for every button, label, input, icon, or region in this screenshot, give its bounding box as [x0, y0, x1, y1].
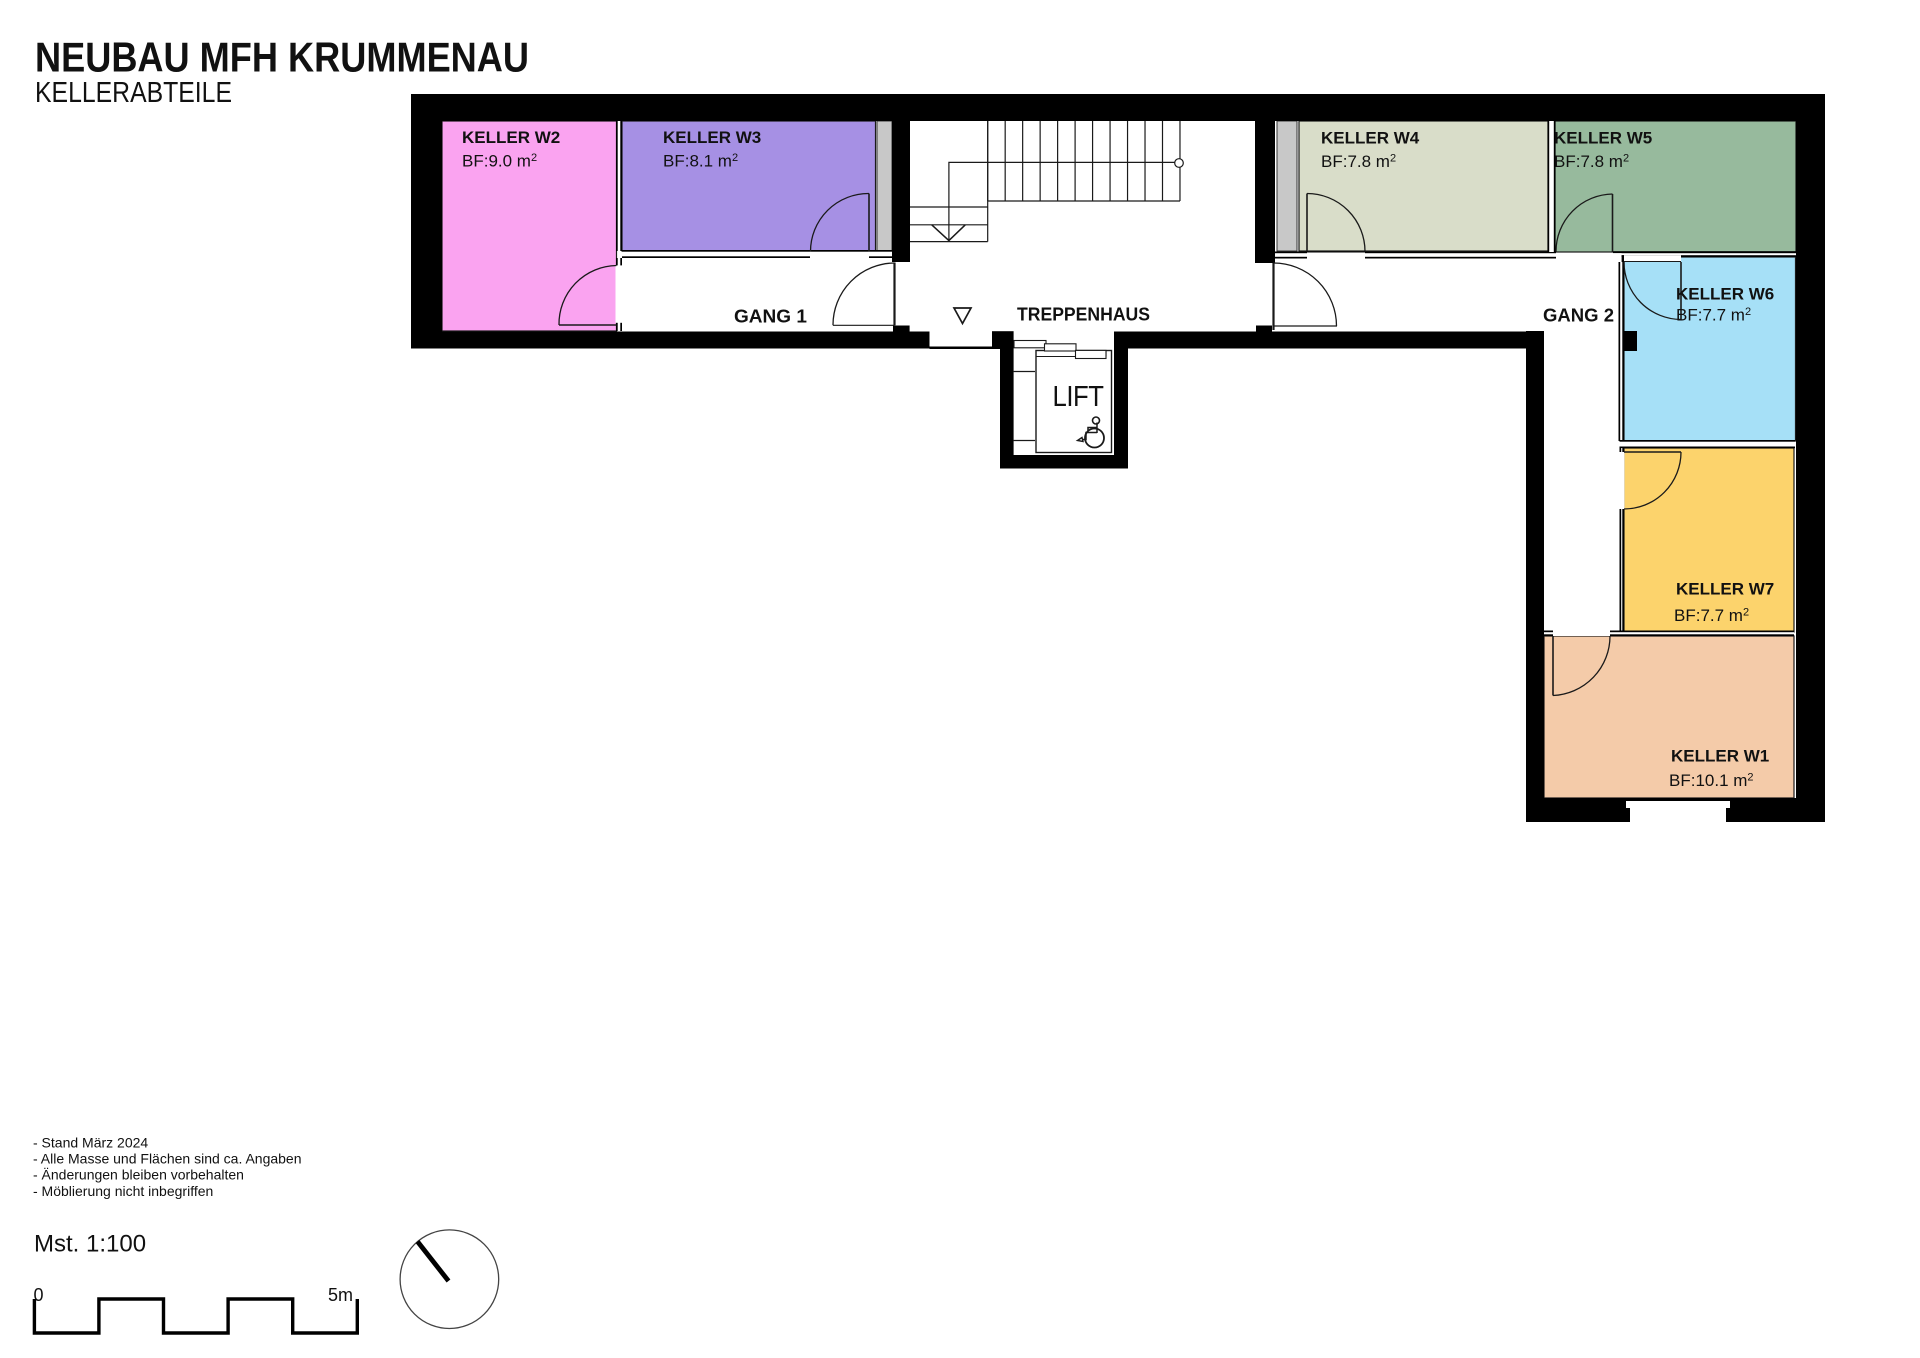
svg-text:GANG 1: GANG 1 [734, 307, 807, 327]
svg-text:- Stand März 2024: - Stand März 2024 [33, 1135, 148, 1151]
svg-text:KELLERABTEILE: KELLERABTEILE [35, 77, 232, 109]
svg-text:BF:7.8 m2: BF:7.8 m2 [1321, 152, 1396, 171]
svg-text:- Möblierung nicht inbegriffen: - Möblierung nicht inbegriffen [33, 1183, 213, 1199]
svg-text:NEUBAU MFH KRUMMENAU: NEUBAU MFH KRUMMENAU [35, 34, 529, 81]
svg-text:BF:9.0 m2: BF:9.0 m2 [462, 152, 537, 171]
svg-text:BF:8.1 m2: BF:8.1 m2 [663, 152, 738, 171]
svg-text:KELLER W5: KELLER W5 [1554, 129, 1652, 148]
svg-text:KELLER W7: KELLER W7 [1676, 580, 1774, 599]
svg-text:KELLER W4: KELLER W4 [1321, 129, 1420, 148]
svg-text:- Änderungen bleiben vorbehalt: - Änderungen bleiben vorbehalten [33, 1167, 244, 1183]
svg-text:KELLER W3: KELLER W3 [663, 128, 761, 147]
svg-text:KELLER W6: KELLER W6 [1676, 285, 1774, 304]
svg-text:KELLER W1: KELLER W1 [1671, 747, 1769, 766]
svg-text:Mst. 1:100: Mst. 1:100 [34, 1231, 146, 1258]
svg-text:TREPPENHAUS: TREPPENHAUS [1017, 305, 1150, 325]
svg-text:BF:10.1 m2: BF:10.1 m2 [1669, 771, 1754, 790]
svg-text:BF:7.8 m2: BF:7.8 m2 [1554, 152, 1629, 171]
svg-text:GANG 2: GANG 2 [1543, 306, 1614, 326]
svg-text:BF:7.7 m2: BF:7.7 m2 [1674, 606, 1749, 625]
svg-text:LIFT: LIFT [1053, 381, 1104, 413]
svg-text:BF:7.7 m2: BF:7.7 m2 [1676, 306, 1751, 325]
svg-text:5m: 5m [328, 1285, 353, 1305]
svg-text:- Alle Masse und Flächen sind: - Alle Masse und Flächen sind ca. Angabe… [33, 1151, 302, 1167]
svg-text:KELLER W2: KELLER W2 [462, 128, 560, 147]
